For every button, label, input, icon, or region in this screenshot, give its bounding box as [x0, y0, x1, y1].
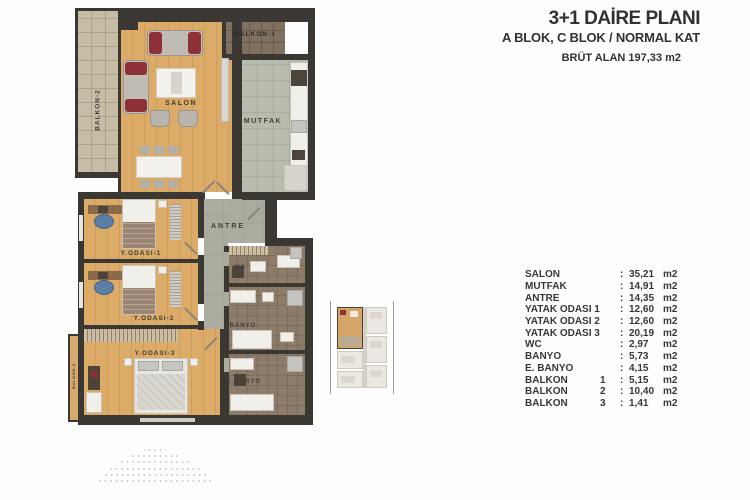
- radiator-bed2: [170, 271, 181, 307]
- salon-console: [221, 58, 229, 122]
- area-table-row: YATAK ODASI 2 : 12,60 m2: [525, 316, 695, 328]
- area-room-name: YATAK ODASI 3: [525, 328, 600, 339]
- dining-chair-5: [154, 180, 164, 188]
- wall-kitchen-bottom: [242, 192, 315, 200]
- kitchen-stove: [291, 70, 307, 86]
- door-gap-bed2: [198, 304, 204, 321]
- bed-3-pillow-left: [138, 361, 159, 371]
- door-gap-ebanyo: [224, 358, 229, 372]
- area-unit: m2: [663, 375, 683, 386]
- area-room-name: WC: [525, 339, 600, 350]
- coffee-table-decor: [171, 72, 182, 94]
- area-separator: :: [620, 293, 629, 304]
- kitchen-oven: [292, 150, 305, 160]
- chair-bed1: [94, 214, 114, 229]
- key-plan-faded-furniture: [341, 376, 355, 383]
- key-plan-faded-unit: [337, 351, 363, 369]
- wall-salon-balcony-line: [118, 22, 121, 192]
- page-title: 3+1 DAİRE PLANI: [502, 8, 700, 30]
- area-unit: m2: [663, 281, 683, 292]
- area-unit: m2: [663, 304, 683, 315]
- area-separator: :: [620, 269, 629, 280]
- area-room-name: BANYO: [525, 351, 600, 362]
- sofa-left-cushion-bottom: [125, 99, 147, 112]
- area-room-number: 2: [600, 386, 620, 397]
- area-table-row: ANTRE : 14,35 m2: [525, 292, 695, 304]
- dots-row: [119, 461, 191, 463]
- area-table-row: BALKON 1 : 5,15 m2: [525, 374, 695, 386]
- key-plan-left-line: [330, 301, 331, 394]
- area-separator: :: [620, 375, 629, 386]
- wall-banyo-ebanyo: [228, 350, 305, 354]
- area-room-name: MUTFAK: [525, 281, 600, 292]
- bed-3-pillow-right: [162, 361, 183, 371]
- window-bed3: [140, 418, 195, 422]
- banyo-counter: [230, 290, 256, 303]
- wall-balcony2-bottom: [75, 172, 121, 178]
- area-value: 12,60: [629, 316, 663, 327]
- area-unit: m2: [663, 363, 683, 374]
- area-unit: m2: [663, 316, 683, 327]
- window-bed1: [79, 215, 83, 241]
- area-separator: :: [620, 304, 629, 315]
- laptop-bed1: [98, 206, 108, 213]
- banyo-sink: [262, 292, 274, 302]
- laptop-bed2: [98, 272, 108, 279]
- room-label-balkon2: BALKON-2: [95, 89, 102, 131]
- area-unit: m2: [663, 328, 683, 339]
- nightstand-bed2: [158, 266, 167, 274]
- room-label-yatak3: Y.ODASI-3: [135, 350, 176, 357]
- key-plan-faded-furniture: [370, 370, 382, 377]
- area-room-number: 1: [600, 375, 620, 386]
- radiator-bed1: [170, 204, 181, 240]
- area-room-name: SALON: [525, 269, 600, 280]
- area-separator: :: [620, 363, 629, 374]
- key-plan-faded-furniture: [341, 356, 355, 363]
- floor-plan-page: 3+1 DAİRE PLANI A BLOK, C BLOK / NORMAL …: [0, 0, 750, 500]
- bed-3-blanket: [137, 374, 185, 410]
- banyo-shower: [287, 290, 303, 306]
- room-label-ebanyo: E.BANYO: [227, 379, 261, 385]
- area-separator: :: [620, 339, 629, 350]
- area-unit: m2: [663, 386, 683, 397]
- header: 3+1 DAİRE PLANI A BLOK, C BLOK / NORMAL …: [502, 8, 700, 64]
- area-table-row: BANYO : 5,73 m2: [525, 351, 695, 363]
- room-label-salon: SALON: [165, 100, 197, 107]
- area-table-row: YATAK ODASI 1 : 12,60 m2: [525, 304, 695, 316]
- room-label-yatak2: Y.ODASI-2: [134, 315, 175, 322]
- area-value: 35,21: [629, 269, 663, 280]
- wall-right-upper: [308, 22, 315, 200]
- area-unit: m2: [663, 269, 683, 280]
- chair-bed2: [94, 280, 114, 295]
- key-plan-right-line: [393, 301, 394, 394]
- gross-area-label: BRÜT ALAN: [562, 52, 626, 64]
- kitchen-sink: [291, 120, 307, 133]
- armchair-bed3: [86, 392, 102, 413]
- area-value: 14,35: [629, 293, 663, 304]
- wall-notch-horizontal: [265, 238, 313, 246]
- dots-watermark: [95, 449, 215, 482]
- area-value: 10,40: [629, 386, 663, 397]
- area-unit: m2: [663, 339, 683, 350]
- bed-1-blanket: [123, 222, 155, 248]
- area-table-row: SALON : 35,21 m2: [525, 269, 695, 281]
- key-plan-highlighted-unit: [337, 307, 363, 349]
- area-separator: :: [620, 351, 629, 362]
- wall-salon-kitchen: [232, 22, 242, 199]
- dots-row: [144, 449, 166, 451]
- armchair-1: [150, 110, 170, 127]
- dots-row: [97, 480, 213, 482]
- key-plan-faded-unit: [366, 307, 387, 334]
- dining-table: [136, 156, 182, 178]
- room-label-antre: ANTRE: [211, 223, 245, 230]
- area-separator: :: [620, 386, 629, 397]
- wall-bed1-bed2: [78, 259, 204, 263]
- room-label-balkon1: BALKON-1: [234, 31, 276, 38]
- dining-chair-1: [140, 146, 150, 154]
- area-table-row: MUTFAK : 14,91 m2: [525, 281, 695, 293]
- area-separator: :: [620, 281, 629, 292]
- area-table: SALON : 35,21 m2 MUTFAK : 14,91 m2 ANTRE…: [525, 269, 695, 409]
- area-value: 1,41: [629, 398, 663, 409]
- area-table-row: BALKON 3 : 1,41 m2: [525, 398, 695, 410]
- bed-2-blanket: [123, 288, 155, 314]
- area-value: 14,91: [629, 281, 663, 292]
- gross-area-line: BRÜT ALAN 197,33 m2: [502, 52, 681, 64]
- area-value: 4,15: [629, 363, 663, 374]
- area-room-name: E. BANYO: [525, 363, 600, 374]
- key-plan-faded-unit: [337, 371, 363, 388]
- key-plan: [330, 301, 394, 394]
- key-plan-unit-sofa: [340, 310, 346, 315]
- area-room-name: YATAK ODASI 1: [525, 304, 600, 315]
- wardrobe-bed3: [84, 329, 178, 342]
- wall-top: [118, 8, 315, 22]
- door-gap-bed1: [198, 238, 204, 255]
- area-value: 5,73: [629, 351, 663, 362]
- gross-area-value: 197,33 m2: [628, 52, 681, 64]
- key-plan-faded-furniture: [370, 341, 382, 348]
- sofa-left-cushion-top: [125, 62, 147, 75]
- area-table-row: BALKON 2 : 10,40 m2: [525, 386, 695, 398]
- dots-row: [130, 455, 180, 457]
- wc-toilet: [250, 261, 266, 272]
- room-label-banyo: BANYO: [230, 323, 257, 329]
- nightstand-bed3-left: [124, 358, 132, 366]
- area-table-row: WC : 2,97 m2: [525, 339, 695, 351]
- wall-bottom: [78, 415, 312, 425]
- area-unit: m2: [663, 293, 683, 304]
- ebanyo-counter: [230, 358, 254, 370]
- door-gap-banyo: [224, 292, 229, 306]
- dots-row: [108, 468, 202, 470]
- banyo-tub: [232, 330, 272, 349]
- sofa-top-cushion-left: [149, 32, 162, 54]
- key-plan-faded-unit: [366, 365, 387, 388]
- room-label-wc: WC: [234, 265, 246, 271]
- area-separator: :: [620, 328, 629, 339]
- area-value: 2,97: [629, 339, 663, 350]
- dining-chair-3: [168, 146, 178, 154]
- kitchen-fridge: [284, 165, 307, 191]
- wall-bath-left: [224, 246, 229, 415]
- wc-shelf: [229, 246, 269, 255]
- key-plan-faded-unit: [366, 336, 387, 363]
- room-label-yatak1: Y.ODASI-1: [121, 250, 162, 257]
- tv-unit-bed3: [88, 366, 100, 390]
- dining-chair-6: [168, 180, 178, 188]
- block-subtitle: A BLOK, C BLOK / NORMAL KAT: [502, 30, 700, 46]
- key-plan-unit-rooms: [340, 336, 360, 346]
- ebanyo-tub: [230, 394, 274, 411]
- area-value: 5,15: [629, 375, 663, 386]
- wall-wc-banyo: [228, 283, 305, 287]
- tv-unit-decor: [90, 371, 98, 377]
- nightstand-bed1: [158, 200, 167, 208]
- wc-cabinet: [290, 247, 302, 259]
- area-room-name: BALKON: [525, 398, 600, 409]
- wall-salon-bottom: [78, 192, 205, 199]
- area-unit: m2: [663, 398, 683, 409]
- wall-balcony2-left: [75, 8, 78, 175]
- area-table-row: YATAK ODASI 3 : 20,19 m2: [525, 327, 695, 339]
- dining-chair-4: [140, 180, 150, 188]
- key-plan-unit-table: [350, 311, 358, 317]
- dots-row: [103, 474, 208, 476]
- area-room-number: 3: [600, 398, 620, 409]
- area-separator: :: [620, 398, 629, 409]
- wall-balcony2-top: [75, 8, 121, 11]
- area-separator: :: [620, 316, 629, 327]
- area-value: 12,60: [629, 304, 663, 315]
- nightstand-bed3-right: [190, 358, 198, 366]
- area-table-row: E. BANYO : 4,15 m2: [525, 363, 695, 375]
- area-room-name: BALKON: [525, 375, 600, 386]
- wall-column: [118, 8, 138, 30]
- wall-right-lower: [305, 238, 313, 425]
- armchair-2: [178, 110, 198, 127]
- room-label-mutfak: MUTFAK: [244, 118, 282, 125]
- sofa-top-cushion-right: [188, 32, 201, 54]
- area-room-name: BALKON: [525, 386, 600, 397]
- area-room-name: YATAK ODASI 2: [525, 316, 600, 327]
- dining-chair-2: [154, 146, 164, 154]
- key-plan-faded-furniture: [370, 312, 382, 319]
- ebanyo-shower: [287, 356, 303, 372]
- window-bed2: [79, 282, 83, 308]
- area-value: 20,19: [629, 328, 663, 339]
- room-label-balkon3: BALKON-3: [72, 363, 76, 389]
- area-unit: m2: [663, 351, 683, 362]
- banyo-toilet: [280, 332, 294, 342]
- area-room-name: ANTRE: [525, 293, 600, 304]
